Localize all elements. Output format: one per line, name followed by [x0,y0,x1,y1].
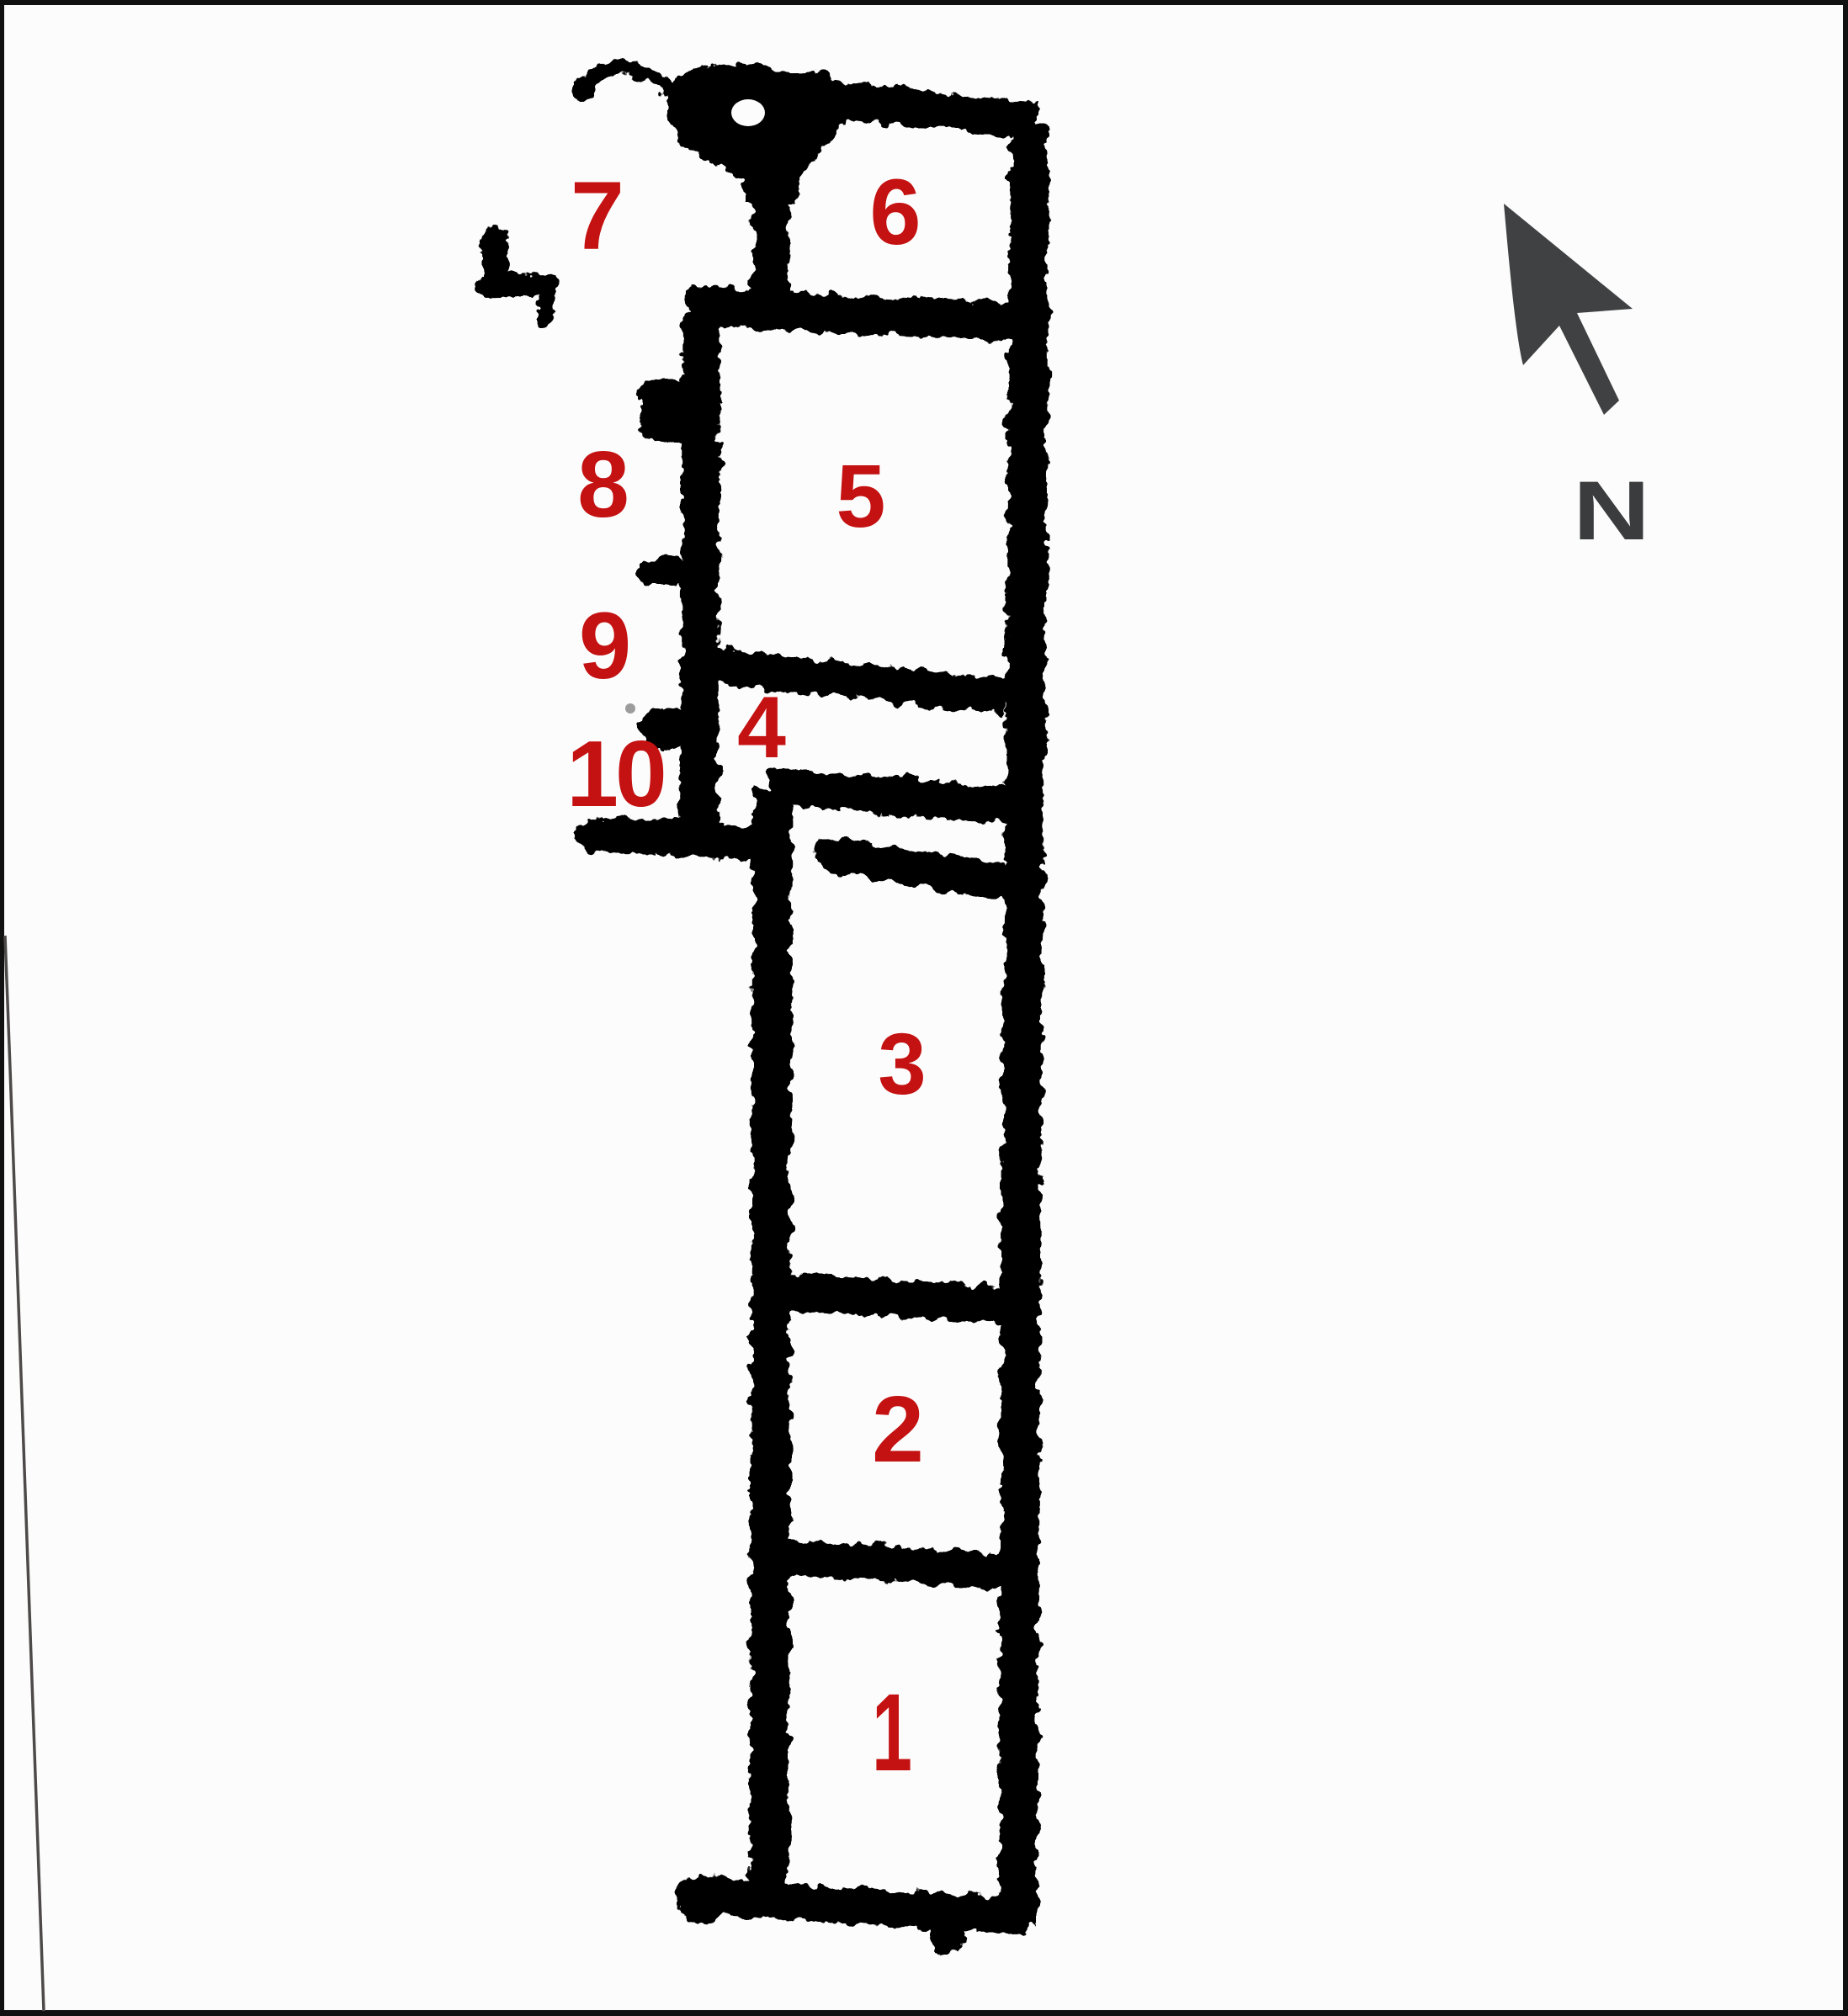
svg-text:9: 9 [579,593,631,698]
svg-text:8: 8 [577,432,629,537]
svg-text:2: 2 [872,1377,924,1482]
svg-text:3: 3 [878,1016,926,1112]
svg-text:6: 6 [869,161,921,264]
svg-text:N: N [1573,464,1650,557]
svg-text:5: 5 [836,447,886,546]
svg-text:4: 4 [737,679,786,777]
svg-text:7: 7 [571,162,624,270]
svg-text:10: 10 [566,722,664,826]
svg-text:1: 1 [872,1670,912,1794]
